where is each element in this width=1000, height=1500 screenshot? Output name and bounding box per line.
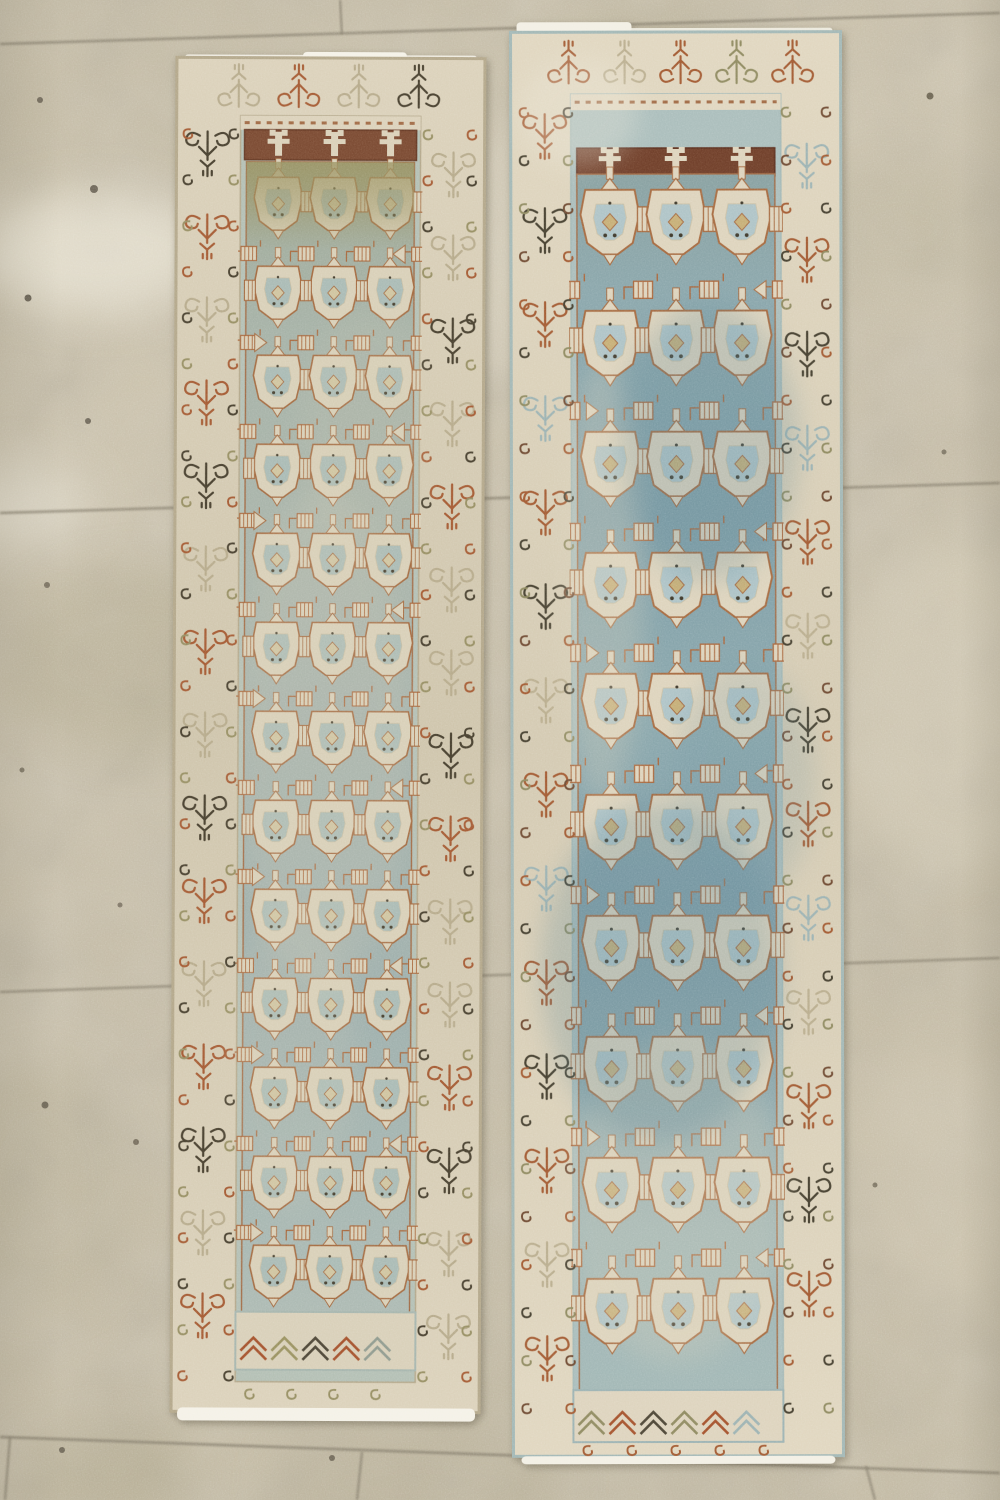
chevron-band: [235, 1312, 415, 1371]
floor-graphic: [0, 0, 1000, 1500]
wear-patch: [225, 910, 356, 1211]
wear-patch: [675, 662, 816, 902]
concrete-floor: [0, 0, 1000, 1500]
wear-patch: [619, 302, 800, 582]
photo-scene: [0, 0, 1000, 1500]
selvage-edge: [521, 1456, 835, 1465]
wear-patch: [298, 310, 439, 551]
selvage-edge: [177, 1407, 475, 1421]
wear-patch: [519, 57, 639, 167]
right-runner-rug: [508, 22, 847, 1465]
left-runner-rug: [169, 49, 487, 1426]
